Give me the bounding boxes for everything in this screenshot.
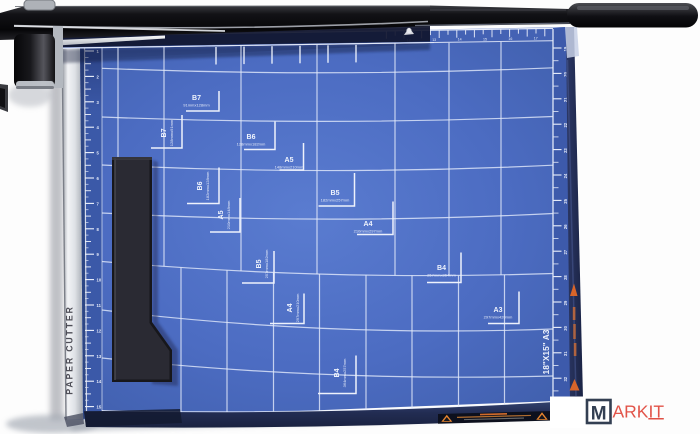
svg-text:128mmx91mm: 128mmx91mm — [169, 119, 174, 146]
svg-text:26: 26 — [563, 224, 568, 229]
svg-text:297mmx420mm: 297mmx420mm — [484, 315, 513, 320]
svg-text:148mmx210mm: 148mmx210mm — [275, 165, 304, 170]
svg-text:210mmx148mm: 210mmx148mm — [226, 200, 231, 229]
svg-text:B6: B6 — [247, 134, 256, 141]
svg-text:27: 27 — [563, 249, 568, 254]
svg-text:B4: B4 — [334, 368, 341, 377]
svg-text:B6: B6 — [197, 181, 204, 190]
svg-text:23: 23 — [563, 148, 568, 153]
svg-text:A4: A4 — [287, 303, 294, 312]
svg-text:25: 25 — [563, 198, 568, 203]
svg-text:32: 32 — [563, 376, 568, 381]
svg-text:297mmx210mm: 297mmx210mm — [295, 293, 300, 322]
svg-text:29: 29 — [563, 300, 568, 305]
svg-text:B7: B7 — [192, 95, 201, 102]
svg-text:A4: A4 — [364, 221, 373, 228]
svg-text:14: 14 — [458, 38, 462, 42]
svg-text:257mmx182mm: 257mmx182mm — [264, 249, 269, 278]
svg-text:B4: B4 — [437, 265, 446, 272]
svg-text:11: 11 — [97, 303, 102, 308]
svg-text:91mmx128mm: 91mmx128mm — [183, 103, 210, 108]
svg-text:31: 31 — [563, 351, 568, 356]
svg-text:15: 15 — [97, 405, 102, 410]
svg-text:B5: B5 — [256, 259, 263, 268]
svg-text:PAPER CUTTER: PAPER CUTTER — [65, 305, 75, 394]
svg-text:A5: A5 — [218, 210, 225, 219]
svg-text:B5: B5 — [331, 190, 340, 197]
svg-text:16: 16 — [508, 37, 512, 41]
svg-text:A3: A3 — [494, 307, 503, 314]
svg-text:A5: A5 — [285, 157, 294, 164]
svg-text:364mmx257mm: 364mmx257mm — [342, 358, 347, 387]
svg-text:15: 15 — [483, 37, 487, 41]
svg-text:28: 28 — [563, 275, 568, 280]
svg-text:257mmx364mm: 257mmx364mm — [427, 273, 456, 278]
svg-text:13: 13 — [97, 354, 102, 359]
svg-text:182mmx128mm: 182mmx128mm — [205, 171, 210, 200]
svg-text:210mmx297mm: 210mmx297mm — [354, 229, 383, 234]
svg-text:24: 24 — [563, 173, 568, 178]
svg-text:12: 12 — [97, 328, 102, 333]
svg-text:18"X15" A3: 18"X15" A3 — [541, 329, 551, 374]
svg-text:30: 30 — [563, 325, 568, 330]
svg-text:14: 14 — [97, 379, 102, 384]
svg-text:B7: B7 — [161, 128, 168, 137]
svg-text:182mmx257mm: 182mmx257mm — [321, 198, 350, 203]
svg-text:M: M — [591, 404, 607, 425]
svg-text:17: 17 — [534, 37, 538, 41]
svg-text:13: 13 — [432, 38, 436, 42]
svg-text:10: 10 — [97, 278, 102, 283]
svg-text:128mmx182mm: 128mmx182mm — [237, 142, 266, 147]
